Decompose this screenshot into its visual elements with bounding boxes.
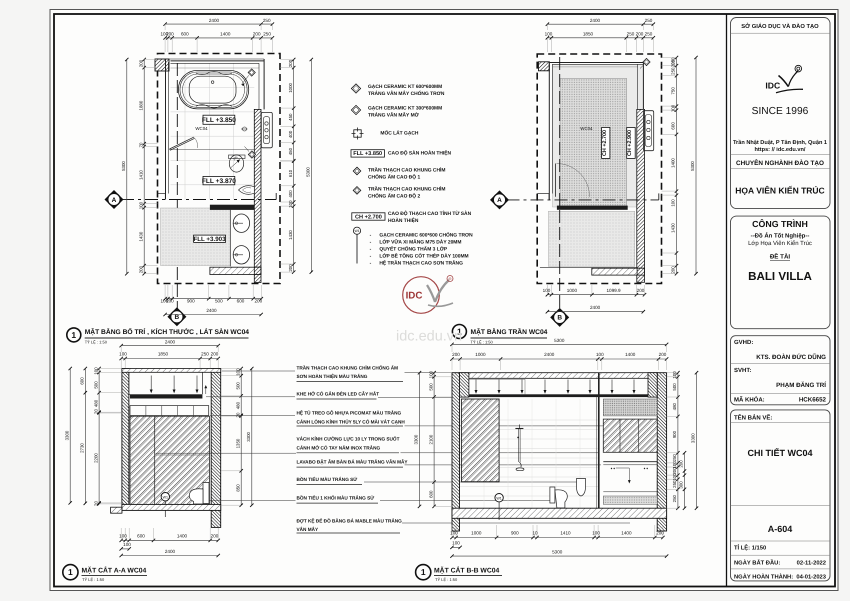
svg-text:FLL +3.903: FLL +3.903 [193, 236, 226, 243]
svg-text:CH +2.700: CH +2.700 [602, 130, 608, 156]
svg-text:TỶ LỆ : 1:50: TỶ LỆ : 1:50 [85, 339, 108, 344]
svg-text:10: 10 [532, 531, 538, 536]
svg-text:5300: 5300 [690, 161, 695, 171]
svg-text:GẠCH CERAMIC KT 600*600MM: GẠCH CERAMIC KT 600*600MM [368, 84, 442, 90]
svg-text:250: 250 [645, 32, 653, 37]
svg-text:B: B [557, 315, 562, 322]
svg-text:TRẦN THẠCH CAO KHUNG CHÌM: TRẦN THẠCH CAO KHUNG CHÌM [368, 186, 445, 193]
svg-text:NGÀY HOÀN THÀNH:: NGÀY HOÀN THÀNH: [734, 573, 793, 581]
svg-text:100: 100 [93, 367, 98, 375]
svg-text:ĐỢT KỆ ĐỂ ĐỒ BẰNG ĐÁ MABLE MÀU: ĐỢT KỆ ĐỂ ĐỒ BẰNG ĐÁ MABLE MÀU TRẮNG [297, 517, 403, 523]
svg-text:2400: 2400 [590, 18, 601, 23]
svg-text:HỆ TRẦN THẠCH CAO SƠN TRẮNG: HỆ TRẦN THẠCH CAO SƠN TRẮNG [379, 259, 463, 266]
svg-text:MỐC LÁT GẠCH: MỐC LÁT GẠCH [380, 130, 419, 137]
svg-text:Lớp Họa Viên Kiến Trúc: Lớp Họa Viên Kiến Trúc [748, 240, 812, 247]
svg-text:600: 600 [671, 122, 676, 130]
svg-text:5300: 5300 [554, 338, 565, 343]
svg-text:100: 100 [288, 200, 293, 208]
svg-text:500: 500 [672, 383, 677, 391]
svg-text:1: 1 [71, 330, 76, 340]
svg-text:HOÀN THIỆN: HOÀN THIỆN [388, 217, 419, 224]
svg-text:200: 200 [166, 32, 174, 37]
svg-text:200: 200 [254, 298, 262, 303]
svg-text:100: 100 [671, 104, 676, 112]
svg-text:02-11-2022: 02-11-2022 [797, 560, 826, 567]
svg-text:200: 200 [671, 59, 676, 67]
svg-text:QUYẾT CHỐNG THẤM 3 LỚP: QUYẾT CHỐNG THẤM 3 LỚP [379, 245, 447, 252]
svg-text:5300: 5300 [552, 549, 563, 554]
svg-text:KHE HỞ CÓ GẮN ĐÈN LED CÂY HẮT: KHE HỞ CÓ GẮN ĐÈN LED CÂY HẮT [297, 391, 380, 397]
svg-text:600: 600 [237, 298, 245, 303]
svg-text:1880: 1880 [138, 100, 143, 110]
svg-text:BỒN TIỂU MÀU TRẮNG SỨ: BỒN TIỂU MÀU TRẮNG SỨ [297, 476, 358, 482]
svg-text:250: 250 [263, 18, 271, 23]
svg-text:480: 480 [672, 402, 677, 410]
svg-text:200: 200 [166, 298, 174, 303]
svg-text:200: 200 [636, 32, 644, 37]
svg-text:200: 200 [671, 266, 676, 274]
svg-text:CHỐNG ẨM CAO ĐỘ 2: CHỐNG ẨM CAO ĐỘ 2 [368, 193, 420, 200]
svg-text:200: 200 [288, 59, 293, 67]
svg-text:750: 750 [671, 87, 676, 95]
svg-text:400: 400 [288, 190, 293, 198]
svg-text:5300: 5300 [306, 167, 311, 177]
svg-text:https: // idc.edu.vn/: https: // idc.edu.vn/ [755, 146, 806, 153]
svg-text:BỒN TIỂU 1 KHỐI MÀU TRẮNG SỨ: BỒN TIỂU 1 KHỐI MÀU TRẮNG SỨ [297, 495, 375, 501]
svg-text:CHUYÊN NGHÀNH ĐÀO TẠO: CHUYÊN NGHÀNH ĐÀO TẠO [736, 159, 824, 167]
svg-text:200: 200 [211, 351, 219, 356]
svg-text:TỶ LỆ : 1:50: TỶ LỆ : 1:50 [471, 339, 494, 344]
svg-text:1000: 1000 [475, 352, 486, 357]
svg-text:2400: 2400 [209, 18, 220, 23]
svg-text:250: 250 [671, 67, 676, 75]
svg-text:200: 200 [452, 352, 460, 357]
svg-text:SVHT:: SVHT: [734, 367, 751, 374]
svg-text:1: 1 [68, 567, 73, 577]
svg-text:1000: 1000 [288, 82, 293, 92]
svg-text:100: 100 [592, 531, 600, 536]
svg-text:200: 200 [679, 460, 684, 468]
svg-text:200: 200 [637, 288, 645, 293]
svg-text:BALI VILLA: BALI VILLA [748, 270, 812, 283]
svg-text:200: 200 [656, 531, 664, 536]
svg-text:3300: 3300 [414, 434, 419, 444]
svg-text:MẶT CẮT A-A WC04: MẶT CẮT A-A WC04 [82, 566, 147, 575]
svg-text:TRẦN THẠCH CAO KHUNG CHÌM CHỐN: TRẦN THẠCH CAO KHUNG CHÌM CHỐNG ẨM [297, 365, 399, 371]
svg-text:W1: W1 [354, 229, 359, 233]
svg-text:GVHD:: GVHD: [734, 339, 753, 346]
svg-text:450: 450 [288, 147, 293, 155]
svg-text:--Đồ Án Tốt Nghiệp--: --Đồ Án Tốt Nghiệp-- [751, 232, 810, 240]
svg-text:250: 250 [627, 32, 635, 37]
svg-text:A-604: A-604 [768, 524, 793, 534]
svg-text:250: 250 [672, 494, 677, 502]
svg-text:100: 100 [428, 370, 433, 378]
svg-text:PHẠM ĐĂNG TRÍ: PHẠM ĐĂNG TRÍ [776, 381, 826, 389]
svg-text:1400: 1400 [177, 533, 188, 538]
svg-text:500: 500 [235, 382, 240, 390]
svg-text:100: 100 [119, 533, 127, 538]
svg-text:3300: 3300 [64, 430, 69, 440]
svg-text:250: 250 [263, 32, 271, 37]
svg-text:idc.edu.vn: idc.edu.vn [396, 329, 462, 345]
svg-text:HCK6652: HCK6652 [799, 397, 827, 404]
svg-text:CHỐNG ẨM CAO ĐỘ 1: CHỐNG ẨM CAO ĐỘ 1 [368, 173, 420, 180]
svg-text:300: 300 [679, 481, 684, 489]
svg-text:100: 100 [119, 351, 127, 356]
svg-text:KTS. ĐOÀN ĐỨC DŨNG: KTS. ĐOÀN ĐỨC DŨNG [756, 353, 826, 361]
svg-text:2400: 2400 [590, 305, 601, 310]
svg-text:1: 1 [421, 567, 426, 577]
svg-text:SỞ GIÁO DỤC VÀ ĐÀO TẠO: SỞ GIÁO DỤC VÀ ĐÀO TẠO [741, 22, 819, 30]
svg-text:20: 20 [93, 409, 98, 414]
svg-text:Trần Nhật Duật, P Tân Định, Qu: Trần Nhật Duật, P Tân Định, Quận 1 [733, 139, 827, 146]
svg-text:250: 250 [201, 351, 209, 356]
svg-text:TỶ LỆ : 1:50: TỶ LỆ : 1:50 [82, 577, 105, 582]
svg-text:2200: 2200 [93, 453, 98, 463]
svg-text:2100: 2100 [428, 434, 433, 444]
svg-text:TỶ LỆ : 1:50: TỶ LỆ : 1:50 [435, 577, 458, 582]
svg-text:1850: 1850 [583, 32, 594, 37]
svg-text:CÁNH LÒNG KÍNH THỦY 5LY CÓ MÀI: CÁNH LÒNG KÍNH THỦY 5LY CÓ MÀI VÁT CẠNH [297, 418, 406, 424]
svg-text:1850: 1850 [158, 351, 169, 356]
svg-text:900: 900 [672, 430, 677, 438]
svg-text:3300: 3300 [691, 433, 696, 443]
svg-text:TỈ LỆ: 1/150: TỈ LỆ: 1/150 [734, 544, 766, 552]
svg-text:TRẦN THẠCH CAO KHUNG CHÌM: TRẦN THẠCH CAO KHUNG CHÌM [368, 166, 445, 173]
svg-text:LỚP VỮA XI MĂNG M75 DÀY 20MM: LỚP VỮA XI MĂNG M75 DÀY 20MM [379, 238, 461, 245]
svg-text:CAO ĐỘ THẠCH CAO TÍNH TỪ SÀN: CAO ĐỘ THẠCH CAO TÍNH TỪ SÀN [388, 210, 472, 217]
svg-text:600: 600 [80, 377, 85, 385]
svg-text:FLL +3.850: FLL +3.850 [202, 117, 236, 124]
svg-text:CÔNG TRÌNH: CÔNG TRÌNH [752, 219, 808, 229]
svg-text:100: 100 [672, 473, 677, 481]
svg-text:2400: 2400 [165, 549, 176, 554]
svg-text:W1: W1 [163, 495, 168, 499]
svg-text:VÂN MÂY: VÂN MÂY [297, 526, 319, 532]
svg-text:A: A [497, 197, 502, 204]
svg-text:FLL +3.850: FLL +3.850 [353, 151, 382, 157]
svg-text:20: 20 [235, 412, 240, 417]
svg-text:200: 200 [253, 32, 261, 37]
svg-text:1400: 1400 [625, 352, 636, 357]
svg-text:FLL +3.870: FLL +3.870 [202, 178, 236, 185]
svg-text:100: 100 [672, 371, 677, 379]
svg-text:480: 480 [235, 401, 240, 409]
svg-text:LỚP BÊ TÔNG CỐT THÉP DÀY 100MM: LỚP BÊ TÔNG CỐT THÉP DÀY 100MM [379, 252, 468, 259]
svg-text:TÊN BẢN VẼ:: TÊN BẢN VẼ: [734, 414, 772, 422]
svg-text:600: 600 [137, 533, 145, 538]
svg-text:200: 200 [659, 352, 667, 357]
svg-text:100: 100 [138, 201, 143, 209]
svg-text:VÁCH KÍNH CƯỜNG LỰC 10 LY TRON: VÁCH KÍNH CƯỜNG LỰC 10 LY TRONG SUỐT [297, 436, 400, 442]
svg-text:600: 600 [181, 32, 189, 37]
svg-text:B: B [175, 314, 180, 321]
svg-text:04-01-2023: 04-01-2023 [796, 574, 826, 581]
svg-text:250: 250 [645, 18, 653, 23]
svg-text:450: 450 [288, 113, 293, 121]
svg-text:CH +2.700: CH +2.700 [355, 214, 382, 220]
svg-text:600: 600 [428, 490, 433, 498]
svg-text:1400: 1400 [621, 531, 632, 536]
svg-text:GẠCH CERAMIC 600*600 CHỐNG TRƠ: GẠCH CERAMIC 600*600 CHỐNG TRƠN [379, 231, 473, 238]
svg-text:MÃ KHÓA:: MÃ KHÓA: [734, 396, 765, 404]
svg-text:HỆ TỦ TREO GỖ NHỰA PICOMAT MÀU: HỆ TỦ TREO GỖ NHỰA PICOMAT MÀU TRẮNG [297, 410, 402, 416]
svg-text:MẶT BẰNG BỐ TRÍ , KÍCH THƯỚC ,: MẶT BẰNG BỐ TRÍ , KÍCH THƯỚC , LÁT SÀN W… [85, 328, 250, 336]
svg-text:1400: 1400 [220, 32, 231, 37]
svg-text:WC04: WC04 [580, 126, 593, 131]
svg-text:850: 850 [235, 484, 240, 492]
svg-text:400: 400 [288, 130, 293, 138]
svg-text:2400: 2400 [206, 308, 217, 313]
svg-text:500: 500 [428, 383, 433, 391]
svg-text:2730: 2730 [80, 443, 85, 453]
svg-text:IDC: IDC [406, 291, 423, 302]
svg-text:200: 200 [138, 265, 143, 273]
svg-text:GẠCH CERAMIC KT 300*600MM: GẠCH CERAMIC KT 300*600MM [368, 105, 442, 111]
svg-text:1410: 1410 [560, 531, 571, 536]
svg-text:100: 100 [235, 368, 240, 376]
svg-text:®: ® [449, 277, 452, 281]
svg-text:MẶT BẰNG TRẦN WC04: MẶT BẰNG TRẦN WC04 [471, 328, 548, 336]
svg-text:3300: 3300 [246, 431, 251, 441]
svg-text:480: 480 [93, 399, 98, 407]
svg-text:5300: 5300 [121, 161, 126, 171]
svg-text:1099.9: 1099.9 [606, 288, 620, 293]
svg-text:100: 100 [545, 32, 553, 37]
svg-text:NGÀY BẮT ĐẦU:: NGÀY BẮT ĐẦU: [734, 559, 780, 567]
svg-text:200: 200 [138, 59, 143, 67]
svg-text:500: 500 [215, 298, 223, 303]
svg-text:500: 500 [93, 381, 98, 389]
svg-text:CHI TIẾT WC04: CHI TIẾT WC04 [747, 447, 812, 458]
svg-text:70: 70 [138, 142, 143, 147]
svg-text:900: 900 [511, 531, 519, 536]
svg-text:610: 610 [288, 169, 293, 177]
svg-text:TRÁNG VÂN MÂY MỜ: TRÁNG VÂN MÂY MỜ [368, 111, 420, 118]
svg-text:MẶT CẮT B-B WC04: MẶT CẮT B-B WC04 [434, 566, 500, 575]
svg-text:2400: 2400 [544, 352, 555, 357]
svg-text:20: 20 [93, 501, 98, 506]
svg-text:ĐỀ TÀI: ĐỀ TÀI [770, 253, 791, 261]
svg-text:250: 250 [672, 454, 677, 462]
svg-text:200: 200 [288, 264, 293, 272]
svg-text:HỌA VIÊN KIẾN TRÚC: HỌA VIÊN KIẾN TRÚC [735, 186, 824, 196]
svg-text:A: A [112, 197, 117, 204]
svg-text:100: 100 [543, 288, 551, 293]
svg-text:100: 100 [596, 352, 604, 357]
svg-text:200: 200 [211, 533, 219, 538]
svg-text:W1: W1 [496, 496, 501, 500]
svg-text:1350: 1350 [235, 438, 240, 448]
svg-text:CH +2.900: CH +2.900 [627, 130, 633, 156]
svg-text:CAO ĐỘ SÀN HOÀN THIỆN: CAO ĐỘ SÀN HOÀN THIỆN [388, 150, 452, 157]
svg-text:WC04: WC04 [195, 126, 208, 131]
svg-text:1430: 1430 [671, 223, 676, 233]
svg-text:900: 900 [187, 298, 195, 303]
svg-text:1000: 1000 [567, 288, 578, 293]
svg-text:1000: 1000 [471, 531, 482, 536]
svg-text:100: 100 [452, 541, 460, 546]
svg-text:1410: 1410 [138, 170, 143, 180]
svg-text:1400: 1400 [671, 158, 676, 168]
svg-text:LAVABO ĐẶT ÂM BÀN ĐÁ MÀU TRẮN: LAVABO ĐẶT ÂM BÀN ĐÁ MÀU TRẮNG VÂN MÂY [297, 459, 409, 465]
svg-text:2400: 2400 [165, 339, 176, 344]
svg-text:100: 100 [123, 542, 131, 547]
svg-text:100: 100 [450, 531, 458, 536]
svg-text:SINCE 1996: SINCE 1996 [752, 106, 809, 117]
svg-text:1430: 1430 [288, 230, 293, 240]
svg-text:SƠN HOÀN THIỆN MÀU TRẮNG: SƠN HOÀN THIỆN MÀU TRẮNG [297, 373, 368, 379]
svg-text:IDC: IDC [765, 80, 780, 90]
svg-text:CÁNH MỞ CÓ TAY NẮM INOX TRẮNG: CÁNH MỞ CÓ TAY NẮM INOX TRẮNG [297, 444, 381, 450]
svg-text:TRÁNG VÂN MÂY CHỐNG TRƠN: TRÁNG VÂN MÂY CHỐNG TRƠN [368, 90, 445, 97]
svg-text:250: 250 [672, 480, 677, 488]
svg-text:100: 100 [671, 199, 676, 207]
svg-text:1430: 1430 [138, 231, 143, 241]
